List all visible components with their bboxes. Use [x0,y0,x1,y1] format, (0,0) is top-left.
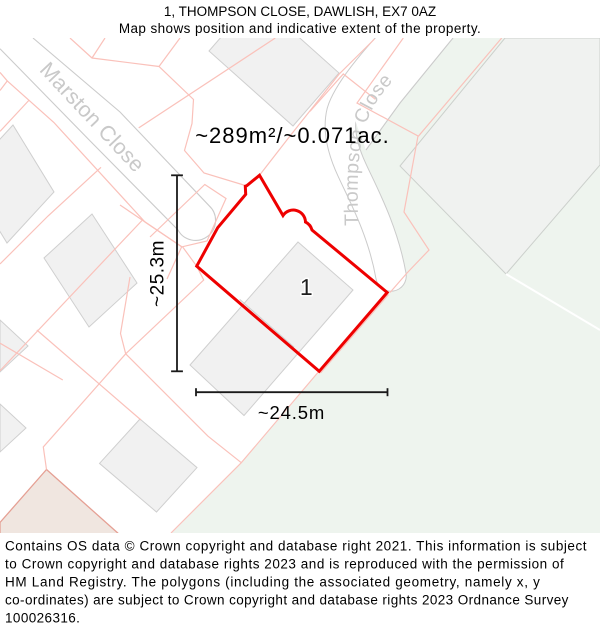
svg-text:co-ordinates) are subject to C: co-ordinates) are subject to Crown copyr… [5,593,569,608]
svg-text:1, THOMPSON CLOSE, DAWLISH, EX: 1, THOMPSON CLOSE, DAWLISH, EX7 0AZ [164,4,436,19]
svg-text:HM Land Registry. The polygons: HM Land Registry. The polygons (includin… [5,575,541,590]
svg-text:1: 1 [300,274,313,300]
svg-text:~24.5m: ~24.5m [258,402,325,423]
svg-text:~25.3m: ~25.3m [148,240,169,307]
svg-text:~289m²/~0.071ac.: ~289m²/~0.071ac. [195,123,390,148]
svg-text:to Crown copyright and databas: to Crown copyright and database rights 2… [5,557,564,572]
svg-text:Contains OS data © Crown copyr: Contains OS data © Crown copyright and d… [5,539,587,554]
svg-text:Map shows position and indicat: Map shows position and indicative extent… [119,21,481,36]
svg-text:100026316.: 100026316. [5,611,80,626]
